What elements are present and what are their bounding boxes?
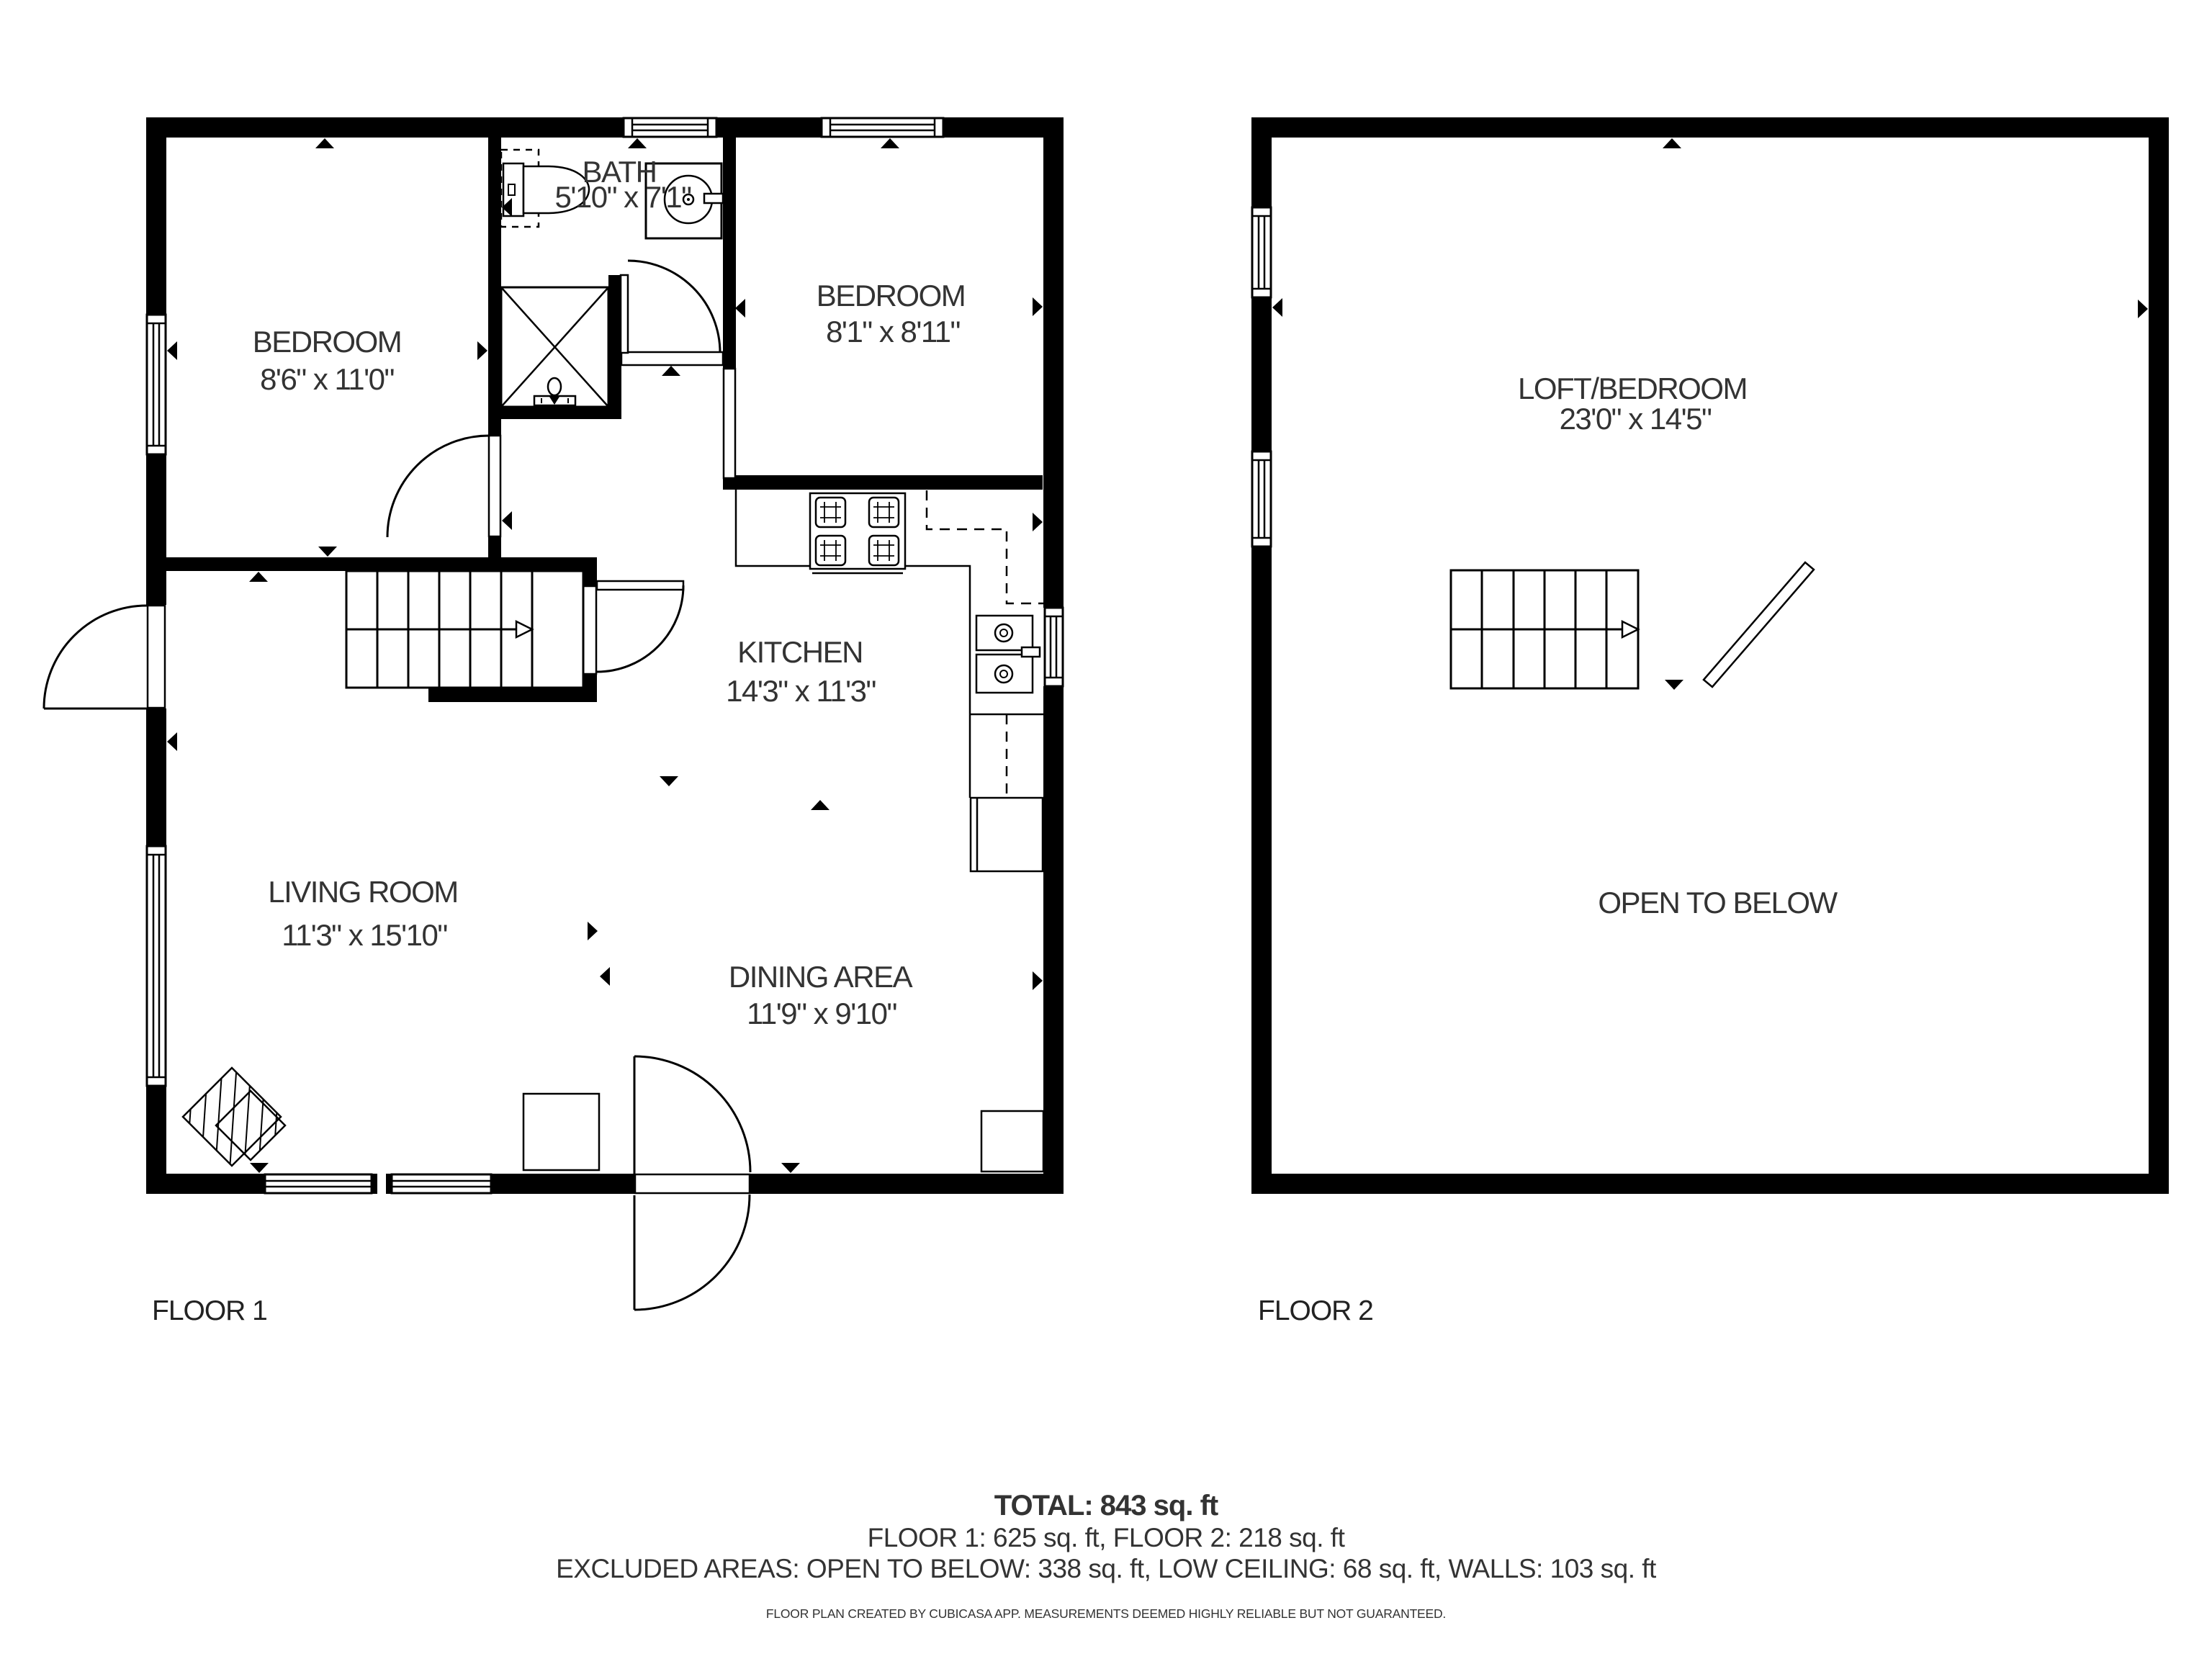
svg-text:BEDROOM: BEDROOM xyxy=(817,279,966,313)
svg-text:KITCHEN: KITCHEN xyxy=(737,635,863,669)
svg-text:LIVING ROOM: LIVING ROOM xyxy=(268,875,458,909)
svg-text:8'6" x 11'0": 8'6" x 11'0" xyxy=(260,362,394,396)
svg-text:5'10" x 7'1": 5'10" x 7'1" xyxy=(555,180,692,214)
svg-text:FLOOR 1: 625 sq. ft, FLOOR 2:: FLOOR 1: 625 sq. ft, FLOOR 2: 218 sq. ft xyxy=(868,1523,1346,1552)
svg-text:LOFT/BEDROOM: LOFT/BEDROOM xyxy=(1518,372,1747,405)
svg-text:23'0" x 14'5": 23'0" x 14'5" xyxy=(1560,402,1712,436)
svg-text:DINING AREA: DINING AREA xyxy=(729,960,913,994)
svg-text:BEDROOM: BEDROOM xyxy=(253,325,402,359)
svg-text:TOTAL: 843 sq. ft: TOTAL: 843 sq. ft xyxy=(994,1490,1218,1521)
svg-text:11'9" x 9'10": 11'9" x 9'10" xyxy=(747,997,896,1030)
svg-text:FLOOR 2: FLOOR 2 xyxy=(1258,1295,1373,1326)
svg-text:OPEN TO BELOW: OPEN TO BELOW xyxy=(1598,886,1838,920)
svg-text:FLOOR PLAN CREATED BY CUBICASA: FLOOR PLAN CREATED BY CUBICASA APP. MEAS… xyxy=(766,1606,1446,1621)
svg-text:11'3" x 15'10": 11'3" x 15'10" xyxy=(282,918,447,952)
svg-text:EXCLUDED AREAS: OPEN TO BELOW:: EXCLUDED AREAS: OPEN TO BELOW: 338 sq. f… xyxy=(556,1554,1657,1583)
svg-text:8'1" x 8'11": 8'1" x 8'11" xyxy=(826,315,960,349)
svg-text:FLOOR 1: FLOOR 1 xyxy=(152,1295,267,1326)
svg-text:14'3" x 11'3": 14'3" x 11'3" xyxy=(726,674,876,708)
